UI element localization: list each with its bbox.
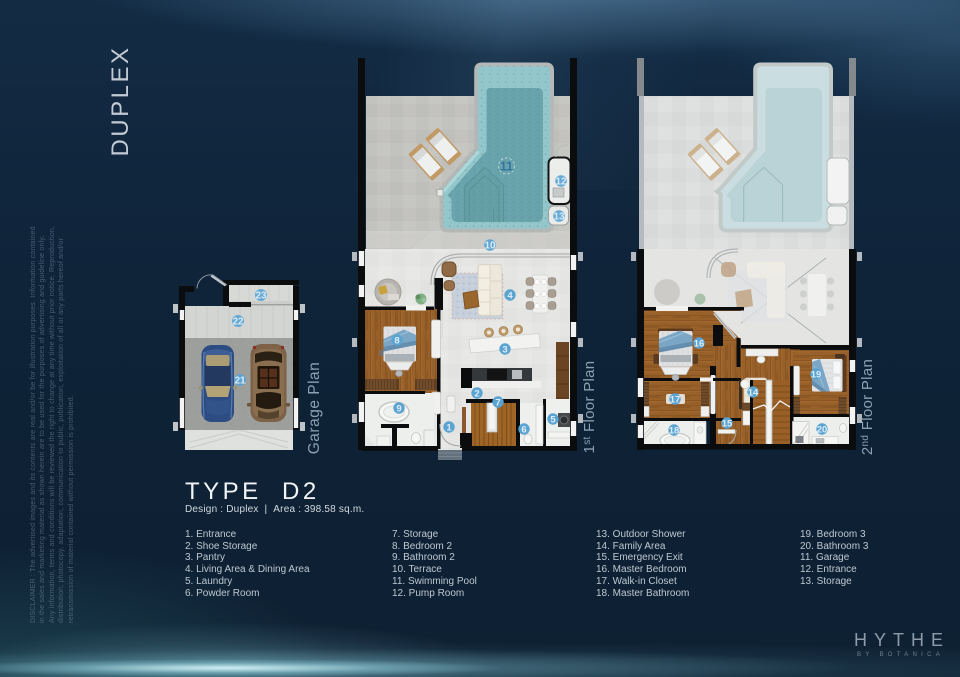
- svg-text:21: 21: [234, 376, 246, 387]
- svg-text:3: 3: [502, 344, 507, 355]
- svg-text:17: 17: [670, 394, 681, 405]
- svg-text:9: 9: [396, 403, 401, 414]
- svg-text:13: 13: [553, 212, 565, 223]
- svg-text:5: 5: [550, 414, 556, 425]
- svg-text:15: 15: [722, 418, 733, 429]
- svg-text:23: 23: [255, 291, 267, 302]
- svg-text:10: 10: [484, 241, 496, 252]
- svg-text:1: 1: [446, 422, 452, 433]
- svg-text:6: 6: [521, 424, 526, 435]
- svg-text:8: 8: [394, 335, 399, 346]
- svg-text:2: 2: [474, 388, 479, 399]
- svg-text:18: 18: [669, 425, 680, 436]
- svg-text:16: 16: [694, 338, 705, 349]
- svg-text:20: 20: [817, 424, 828, 435]
- svg-text:11: 11: [500, 160, 513, 174]
- svg-text:7: 7: [495, 397, 500, 408]
- svg-text:12: 12: [555, 177, 567, 188]
- svg-text:19: 19: [811, 369, 822, 380]
- svg-text:22: 22: [232, 317, 244, 328]
- svg-text:4: 4: [507, 290, 513, 301]
- svg-text:14: 14: [748, 387, 759, 398]
